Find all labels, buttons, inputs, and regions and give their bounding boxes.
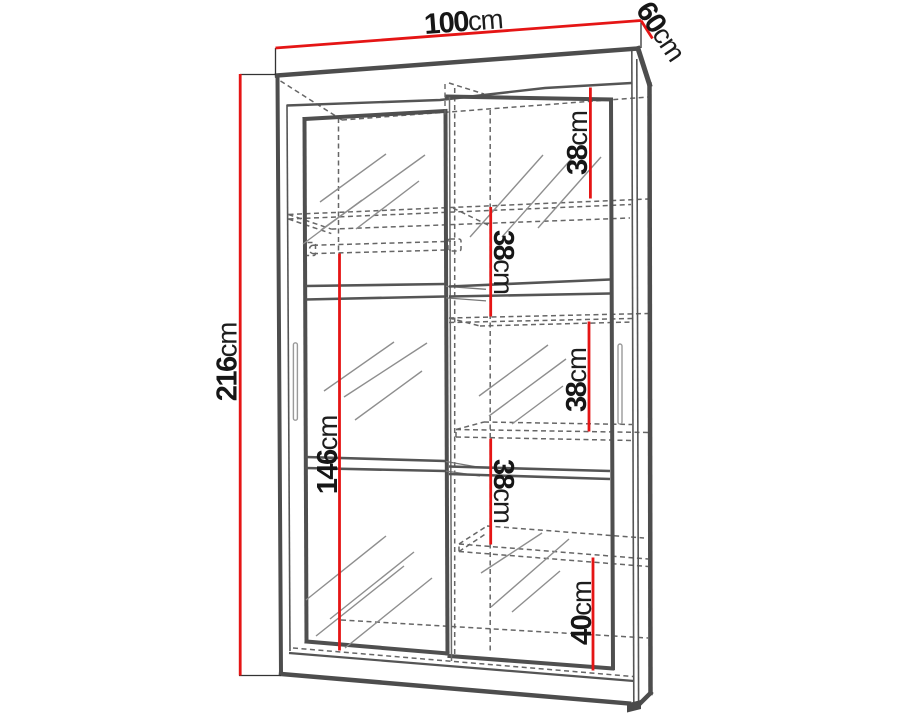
svg-text:38cm: 38cm	[487, 230, 519, 294]
svg-text:38cm: 38cm	[487, 459, 519, 523]
svg-text:40cm: 40cm	[566, 581, 598, 645]
svg-text:38cm: 38cm	[561, 348, 593, 412]
svg-text:38cm: 38cm	[562, 111, 594, 175]
svg-text:146cm: 146cm	[312, 416, 344, 495]
svg-text:216cm: 216cm	[212, 323, 244, 402]
